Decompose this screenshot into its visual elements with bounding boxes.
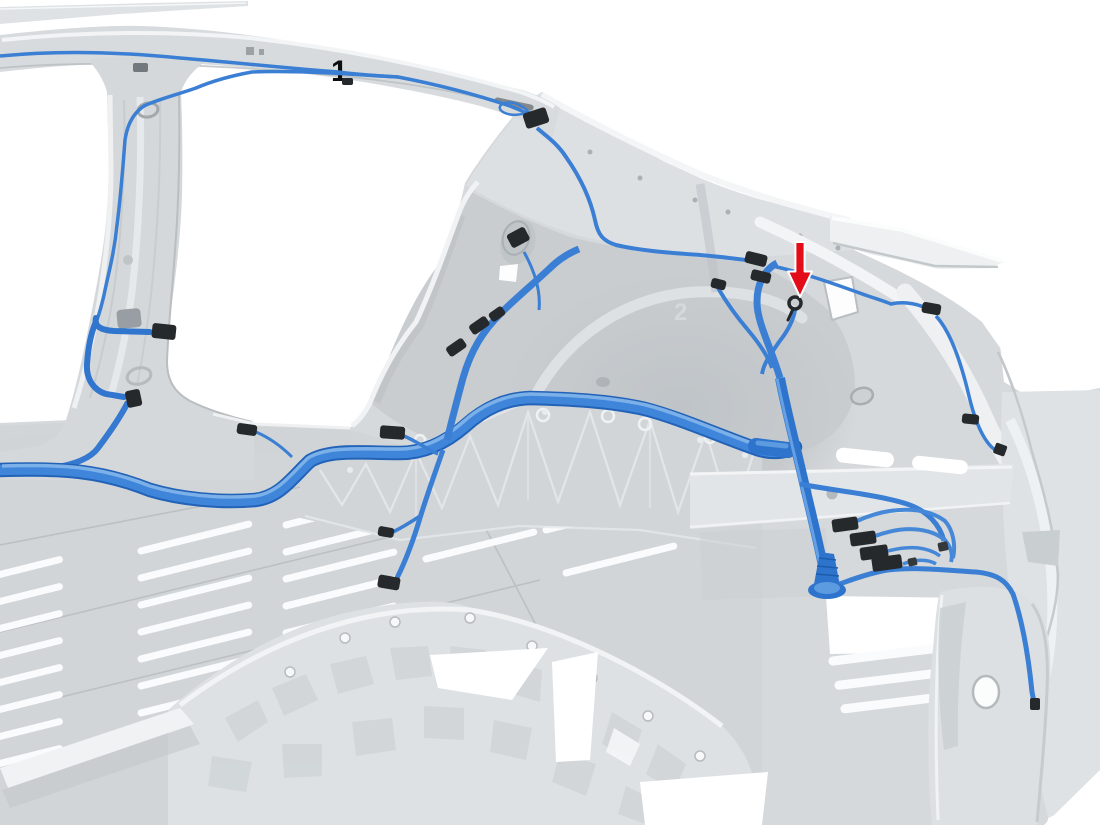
svg-text:2: 2 (674, 299, 687, 326)
